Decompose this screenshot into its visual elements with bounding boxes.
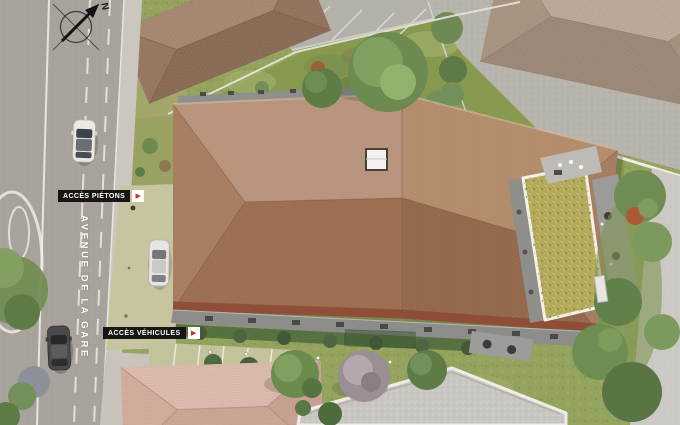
vehicle-access-arrow-icon: ▶ — [188, 327, 200, 339]
street-name-avenue-de-la-gare: AVENUE DE LA GARE — [79, 215, 90, 359]
pedestrian-access-label: ACCÈS PIÉTONS ▶ — [58, 190, 144, 202]
vehicle-access-label: ACCÈS VÉHICULES ▶ — [103, 327, 200, 339]
car-driving-dark — [45, 326, 74, 375]
pedestrian-access-arrow-icon: ▶ — [132, 190, 144, 202]
site-plan-drawing: N — [0, 0, 680, 425]
site-plan: N AVENUE DE LA GARE ACCÈS PIÉTONS ▶ ACCÈ… — [0, 0, 680, 425]
vehicle-access-text: ACCÈS VÉHICULES — [103, 327, 186, 339]
pedestrian-access-text: ACCÈS PIÉTONS — [58, 190, 130, 202]
roof-skylight — [366, 149, 387, 170]
